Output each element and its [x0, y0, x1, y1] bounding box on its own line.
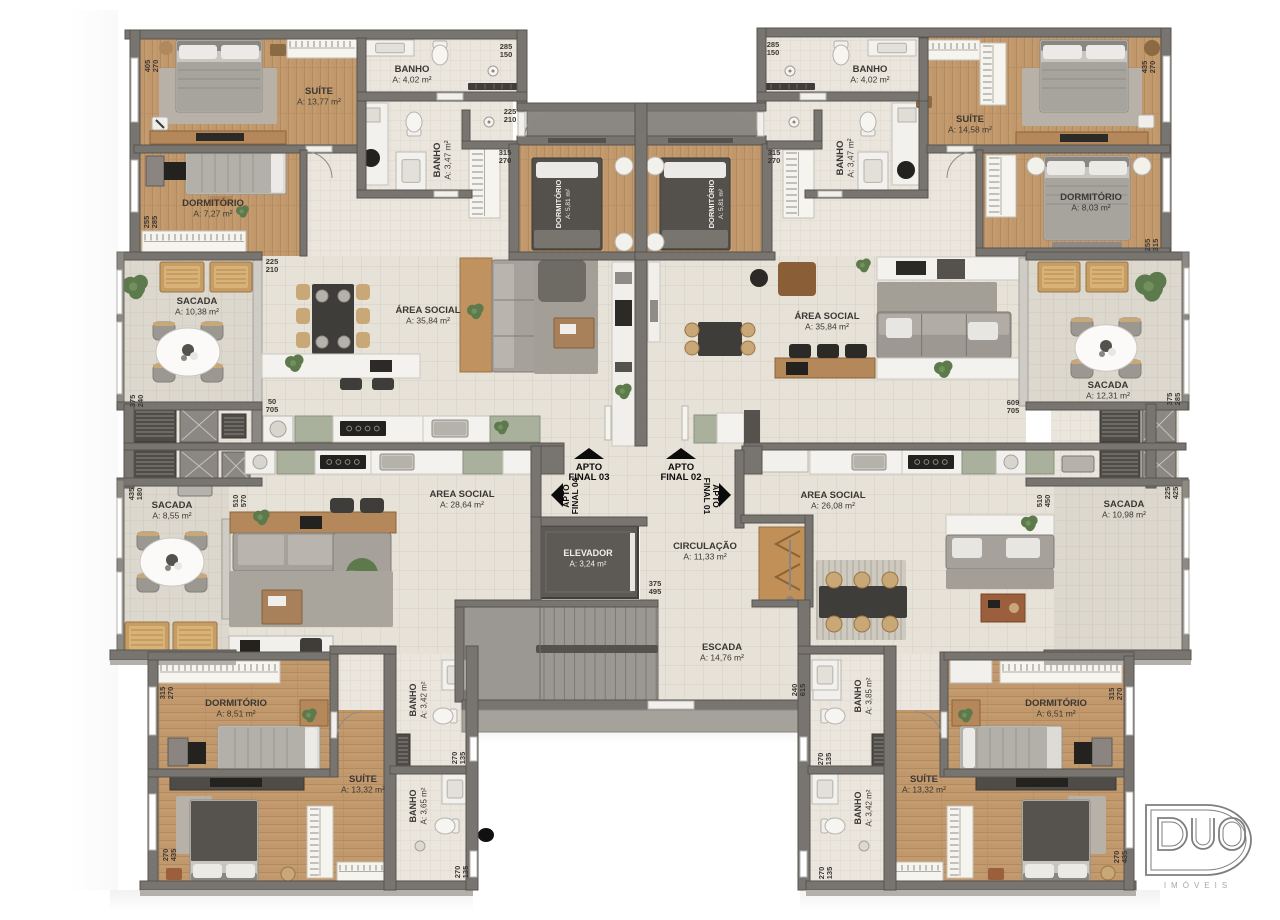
svg-text:270: 270	[1115, 688, 1124, 701]
svg-text:240: 240	[136, 395, 145, 408]
svg-text:AREA SOCIAL: AREA SOCIAL	[429, 489, 494, 500]
svg-text:SUÍTE: SUÍTE	[305, 86, 333, 97]
svg-text:270: 270	[768, 156, 781, 165]
svg-text:BANHO: BANHO	[408, 684, 418, 717]
svg-text:A: 4,02 m²: A: 4,02 m²	[392, 75, 431, 85]
svg-text:A: 14,76 m²: A: 14,76 m²	[700, 653, 744, 663]
svg-text:135: 135	[458, 752, 467, 765]
svg-text:A: 7,27 m²: A: 7,27 m²	[193, 209, 232, 219]
svg-text:A: 35,84 m²: A: 35,84 m²	[406, 316, 450, 326]
svg-text:AREA SOCIAL: AREA SOCIAL	[800, 490, 865, 501]
svg-text:A: 6,51 m²: A: 6,51 m²	[1036, 709, 1075, 719]
svg-text:135: 135	[461, 866, 470, 879]
svg-text:315: 315	[1151, 239, 1160, 252]
svg-text:A: 8,51 m²: A: 8,51 m²	[216, 709, 255, 719]
svg-text:A: 26,08 m²: A: 26,08 m²	[811, 501, 855, 511]
svg-text:210: 210	[266, 265, 279, 274]
svg-text:A: 10,98 m²: A: 10,98 m²	[1102, 510, 1146, 520]
svg-text:A: 14,58 m²: A: 14,58 m²	[948, 125, 992, 135]
svg-text:135: 135	[825, 867, 834, 880]
svg-text:A: 4,02 m²: A: 4,02 m²	[850, 75, 889, 85]
svg-text:ESCADA: ESCADA	[702, 642, 742, 653]
svg-text:FINAL 01: FINAL 01	[702, 478, 712, 515]
svg-text:BANHO: BANHO	[835, 141, 846, 176]
svg-text:270: 270	[151, 60, 160, 73]
svg-text:270: 270	[1148, 61, 1157, 74]
svg-text:150: 150	[767, 48, 780, 57]
svg-text:DORMITÓRIO: DORMITÓRIO	[1060, 191, 1122, 203]
svg-text:A: 3,65 m²: A: 3,65 m²	[420, 787, 429, 824]
svg-text:SACADA: SACADA	[1104, 499, 1145, 510]
svg-text:BANHO: BANHO	[853, 64, 888, 75]
svg-text:SUÍTE: SUÍTE	[910, 774, 938, 785]
svg-text:CIRCULAÇÃO: CIRCULAÇÃO	[673, 541, 737, 552]
svg-text:A: 35,84 m²: A: 35,84 m²	[805, 322, 849, 332]
svg-text:135: 135	[824, 753, 833, 766]
svg-text:SUÍTE: SUÍTE	[956, 114, 984, 125]
svg-text:ELEVADOR: ELEVADOR	[563, 548, 613, 558]
svg-text:BANHO: BANHO	[395, 64, 430, 75]
svg-text:A: 12,31 m²: A: 12,31 m²	[1086, 391, 1130, 401]
svg-text:DORMITÓRIO: DORMITÓRIO	[182, 197, 244, 209]
svg-text:210: 210	[504, 115, 517, 124]
svg-text:270: 270	[499, 156, 512, 165]
svg-text:450: 450	[1043, 495, 1052, 508]
svg-text:435: 435	[1120, 851, 1129, 864]
svg-text:A: 8,03 m²: A: 8,03 m²	[1071, 203, 1110, 213]
svg-text:705: 705	[1007, 406, 1020, 415]
svg-text:BANHO: BANHO	[853, 680, 863, 713]
svg-text:SACADA: SACADA	[152, 500, 193, 511]
svg-text:A: 3,42 m²: A: 3,42 m²	[865, 789, 874, 826]
svg-text:705: 705	[266, 405, 279, 414]
svg-text:425: 425	[1171, 487, 1180, 500]
svg-text:SACADA: SACADA	[177, 296, 218, 307]
svg-text:A: 11,33 m²: A: 11,33 m²	[683, 552, 726, 562]
svg-text:A: 13,32 m²: A: 13,32 m²	[341, 785, 385, 795]
svg-text:615: 615	[798, 684, 807, 697]
svg-text:DORMITÓRIO: DORMITÓRIO	[1025, 697, 1087, 709]
svg-text:495: 495	[649, 587, 662, 596]
svg-text:A: 10,38 m²: A: 10,38 m²	[175, 307, 219, 317]
svg-text:A: 13,77 m²: A: 13,77 m²	[297, 97, 341, 107]
svg-text:570: 570	[239, 495, 248, 508]
svg-text:A: 3,47 m²: A: 3,47 m²	[846, 138, 856, 177]
svg-text:FINAL 04: FINAL 04	[570, 477, 580, 514]
svg-text:A: 28,64 m²: A: 28,64 m²	[440, 500, 484, 510]
svg-text:BANHO: BANHO	[408, 790, 418, 823]
svg-text:SACADA: SACADA	[1088, 380, 1129, 391]
svg-text:A: 8,55 m²: A: 8,55 m²	[152, 511, 191, 521]
svg-text:DORMITÓRIO: DORMITÓRIO	[205, 697, 267, 709]
svg-text:ÁREA SOCIAL: ÁREA SOCIAL	[794, 311, 859, 322]
svg-text:A: 3,42 m²: A: 3,42 m²	[420, 681, 429, 718]
svg-text:270: 270	[166, 687, 175, 700]
svg-text:BANHO: BANHO	[853, 792, 863, 825]
svg-text:BANHO: BANHO	[432, 143, 443, 178]
svg-text:A: 3,85 m²: A: 3,85 m²	[865, 677, 874, 714]
svg-text:IMÓVEIS: IMÓVEIS	[1164, 881, 1232, 890]
svg-text:A: 13,32 m²: A: 13,32 m²	[902, 785, 946, 795]
svg-text:150: 150	[500, 50, 513, 59]
svg-text:180: 180	[135, 488, 144, 501]
svg-text:DORMITÓRIO: DORMITÓRIO	[707, 179, 716, 228]
svg-text:A: 5,81 m²: A: 5,81 m²	[565, 188, 572, 219]
svg-text:DORMITÓRIO: DORMITÓRIO	[554, 179, 563, 228]
svg-text:A: 3,47 m²: A: 3,47 m²	[443, 140, 453, 179]
svg-text:A: 3,24 m²: A: 3,24 m²	[570, 560, 607, 569]
svg-text:285: 285	[150, 216, 159, 229]
svg-text:285: 285	[1173, 393, 1182, 406]
svg-text:435: 435	[169, 849, 178, 862]
svg-text:A: 5,81 m²: A: 5,81 m²	[718, 188, 725, 219]
svg-text:SUÍTE: SUÍTE	[349, 774, 377, 785]
svg-text:FINAL 02: FINAL 02	[660, 472, 701, 483]
svg-text:ÁREA SOCIAL: ÁREA SOCIAL	[395, 305, 460, 316]
